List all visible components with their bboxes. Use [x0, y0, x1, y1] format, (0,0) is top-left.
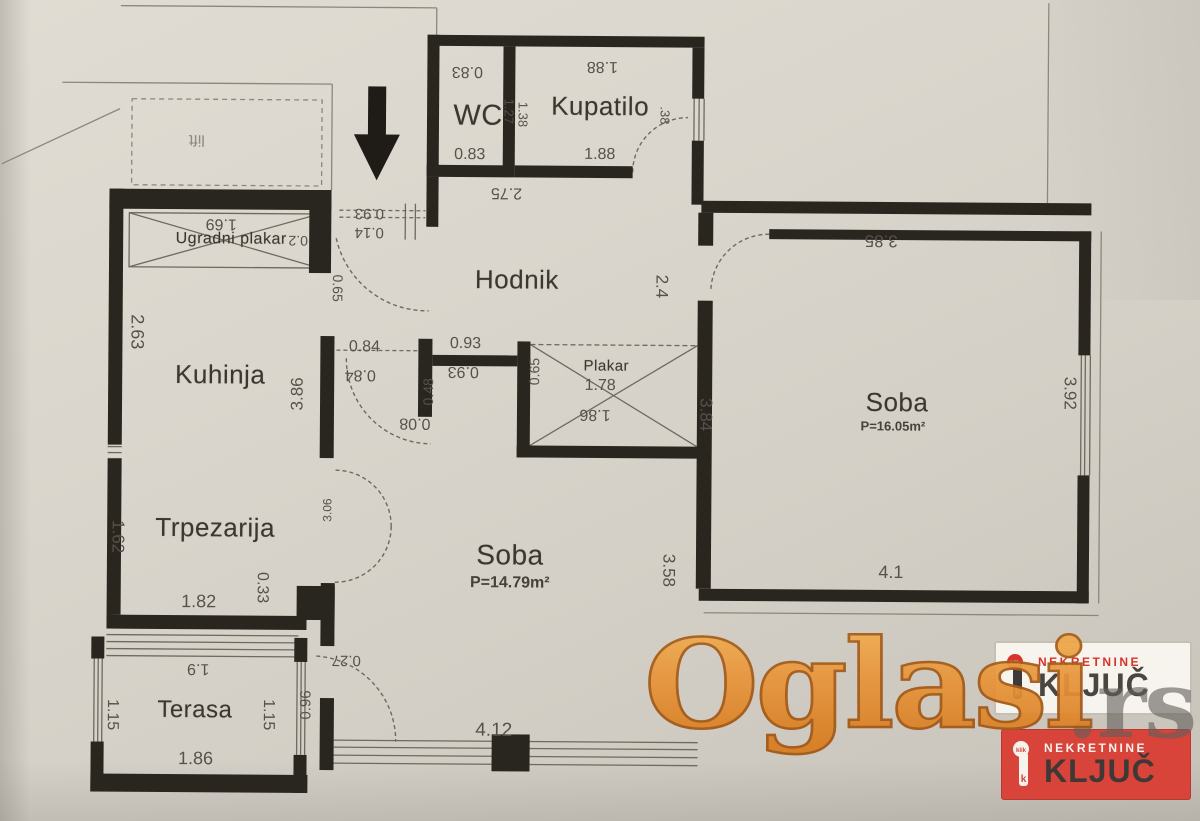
dimension-label: 4.12 [475, 721, 512, 740]
dimension-label: 1.88 [584, 147, 615, 163]
room-label-trpezarija: Trpezarija [155, 514, 275, 541]
dimension-label: 2.75 [491, 184, 522, 200]
dimension-label: 1.86 [579, 406, 610, 422]
svg-text:k: k [1021, 774, 1027, 785]
dimension-label: 0.84 [345, 366, 376, 382]
dimension-label: 1.88 [587, 58, 618, 74]
dimension-label: 1.27 [502, 99, 515, 124]
dimension-label: 1.78 [585, 378, 616, 394]
room-label-soba-center: Soba [476, 541, 544, 569]
dimension-label: 0.93 [355, 206, 384, 221]
dimension-label: 0.83 [454, 147, 485, 163]
room-label-kuhinja: Kuhinja [175, 361, 265, 388]
room-label-soba-right: Soba [866, 389, 929, 415]
floorplan-photo: WC Kupatilo Hodnik Ugradni plakar Kuhinj… [0, 0, 1200, 821]
dimension-label: 1.69 [206, 215, 237, 231]
dimension-label: 3.85 [865, 232, 898, 249]
dimension-label: 3.06 [321, 498, 333, 521]
room-label-lift: lift [189, 131, 205, 147]
dimension-label: 3.84 [697, 398, 714, 431]
dimension-label: 1.38 [516, 102, 529, 127]
dimension-label: 0.14 [355, 225, 384, 240]
room-label-wc: WC [453, 101, 503, 130]
dimension-label: 0.84 [349, 339, 380, 355]
room-label-terasa: Terasa [157, 698, 232, 723]
dimension-label: 3.86 [288, 377, 305, 410]
dimension-label: 1.62 [109, 520, 126, 553]
room-label-ugradni-plakar: Ugradni plakar [176, 231, 287, 248]
watermark-brand: Oglasi [644, 612, 1091, 756]
dimension-label: 1.86 [178, 749, 213, 767]
dimension-label: 0.93 [448, 363, 479, 379]
dimension-label: 3.58 [660, 554, 677, 587]
dimension-label: 2.63 [128, 314, 146, 349]
room-area-soba-center: P=14.79m² [470, 575, 550, 592]
dimension-label: 0.93 [450, 336, 481, 352]
dimension-label: 0.08 [399, 415, 430, 431]
dimension-label: 2.4 [653, 275, 670, 299]
room-label-plakar: Plakar [583, 358, 629, 373]
entrance-arrow-icon [354, 86, 401, 180]
dimension-label: 0.27 [332, 653, 361, 668]
dimension-label: 3.92 [1062, 377, 1079, 410]
dimension-label: 0.83 [452, 63, 483, 79]
dimension-label: 1.9 [187, 660, 209, 676]
dimension-label: 1.82 [181, 592, 216, 610]
dimension-label: 0.96 [298, 690, 313, 719]
room-area-soba-right: P=16.05m² [861, 419, 926, 432]
dimension-label: .38 [658, 106, 671, 124]
room-label-hodnik: Hodnik [475, 266, 559, 293]
dimension-label: 4.1 [878, 563, 903, 581]
room-label-kupatilo: Kupatilo [551, 93, 649, 120]
dimension-label: 1.15 [104, 699, 120, 730]
dimension-label: 0.48 [421, 378, 435, 405]
dimension-label: 0.33 [254, 572, 270, 603]
dimension-label: 0.65 [331, 274, 345, 301]
dimension-label: 0.2 [288, 234, 308, 248]
dimension-label: 1.15 [260, 699, 276, 730]
dimension-label: 0.65 [527, 358, 541, 385]
